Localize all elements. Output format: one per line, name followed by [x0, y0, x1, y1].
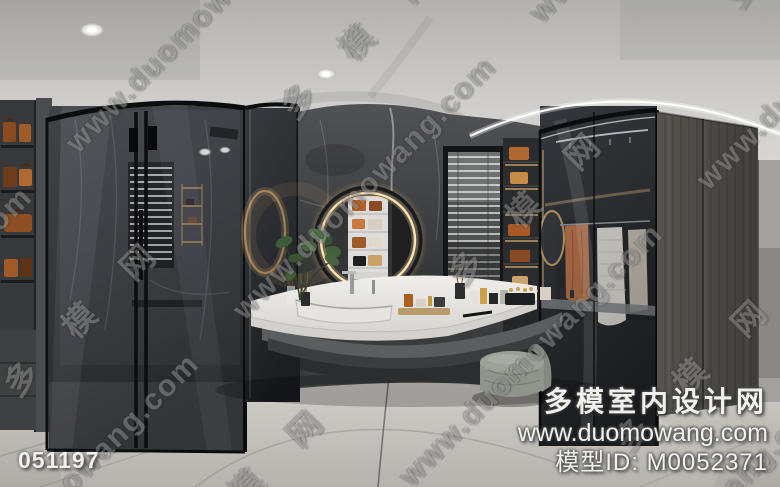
model-id: 模型ID: M0052371: [518, 448, 768, 477]
shower-enclosure: [47, 103, 245, 452]
brand-name: 多模室内设计网: [518, 386, 768, 418]
wood-panel-wall: [657, 112, 758, 416]
panorama-screenshot: www.duomowang.com www.duomowang.com www.…: [0, 0, 780, 487]
brand-watermark-block: 多模室内设计网 www.duomowang.com 模型ID: M0052371: [518, 386, 768, 477]
scene-id: 051197: [18, 447, 99, 474]
site-url: www.duomowang.com: [518, 418, 768, 448]
door-handle: [139, 210, 143, 280]
corridor-wall: [758, 160, 780, 402]
